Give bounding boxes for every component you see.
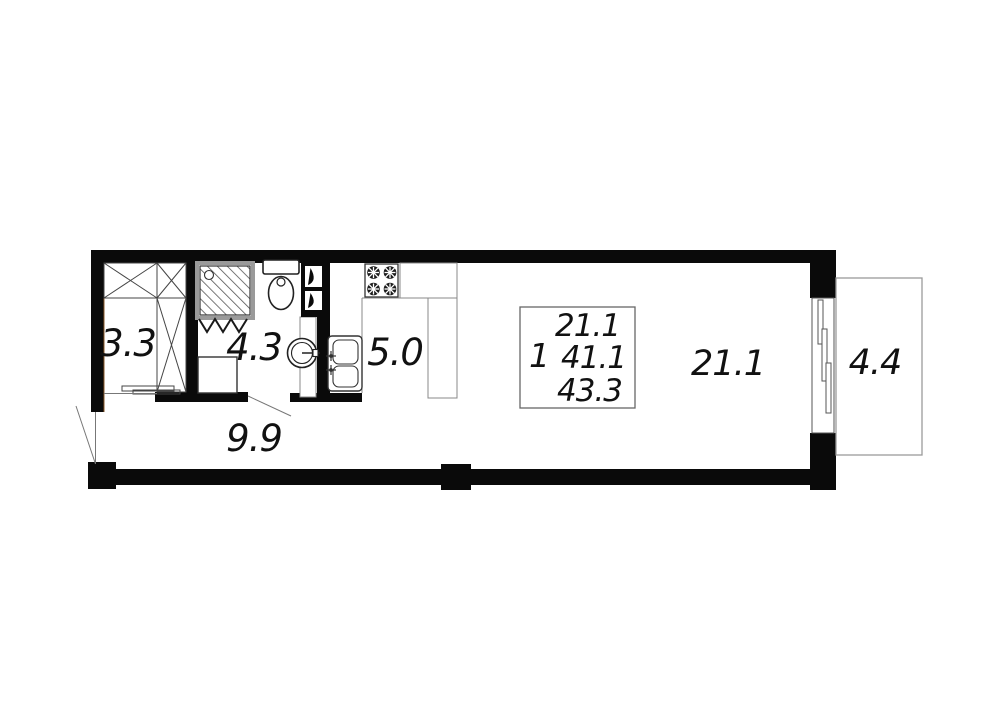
summary-rooms-count: 1 [529,336,549,375]
counter-top-run [400,263,457,298]
tall-kitchen-cabinet [428,298,457,398]
floorplan-canvas: 1 21.1 41.1 43.3 3.3 4.3 5.0 9.9 21.1 4.… [0,0,1000,706]
toilet [263,260,299,310]
summary-total-area: 43.3 [557,373,622,409]
room-label-bathroom: 4.3 [226,326,282,369]
room-label-balcony: 4.4 [849,343,902,383]
entrance-door-leaf [76,406,96,464]
shower-cabin [197,263,253,332]
room-label-living-room: 21.1 [691,344,765,384]
summary-box: 1 21.1 41.1 43.3 [520,307,635,409]
hallway-leader-line [248,396,291,416]
summary-living-area: 21.1 [555,308,620,344]
balcony-sliding-door [812,298,834,433]
floorplan-drawing: 1 21.1 41.1 43.3 3.3 4.3 5.0 9.9 21.1 4.… [0,0,1000,706]
summary-apartment-area: 41.1 [561,340,626,376]
room-label-kitchen: 5.0 [367,331,423,374]
room-label-wardrobe: 3.3 [100,322,156,365]
kitchen-sink [326,336,362,391]
vent-shafts [301,263,330,317]
room-label-hallway: 9.9 [226,417,282,460]
stove [365,264,398,297]
